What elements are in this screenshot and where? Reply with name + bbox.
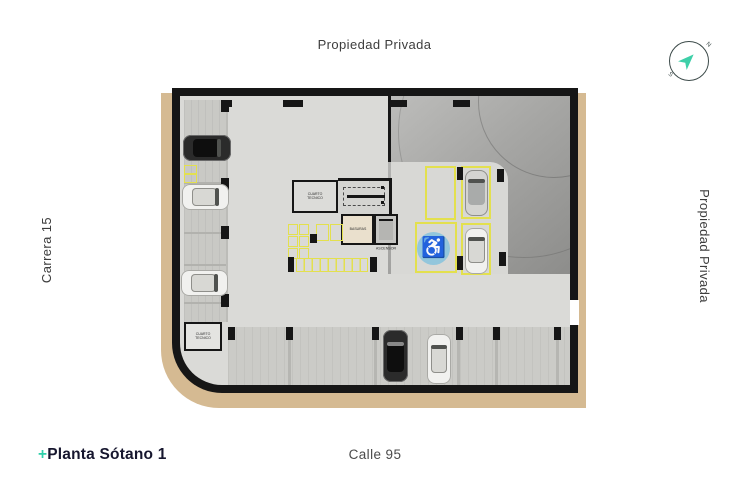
compass-arrow-icon bbox=[677, 49, 700, 72]
elevator-label: ASCENSOR bbox=[368, 247, 404, 251]
column bbox=[286, 327, 293, 340]
elevator-door bbox=[379, 219, 393, 240]
storage-box bbox=[288, 224, 298, 235]
space-divider bbox=[184, 264, 227, 266]
parking-space-empty bbox=[425, 166, 456, 220]
car-white-left-1 bbox=[182, 184, 229, 210]
room-technical-2-label: CUARTO TECNICO bbox=[190, 332, 217, 340]
stair-rail bbox=[347, 195, 385, 198]
column bbox=[497, 169, 504, 182]
car-white-right bbox=[465, 228, 488, 274]
compass-icon: N S bbox=[669, 41, 709, 81]
column bbox=[457, 256, 463, 270]
column bbox=[221, 100, 229, 112]
room-technical-2: CUARTO TECNICO bbox=[184, 322, 222, 351]
storage-box-divider bbox=[184, 173, 197, 175]
label-propiedad-privada-right: Propiedad Privada bbox=[698, 186, 712, 306]
column bbox=[390, 100, 407, 107]
car-white-bottom bbox=[427, 334, 451, 384]
floorplan-page: Propiedad Privada Carrera 15 Propiedad P… bbox=[0, 0, 749, 500]
column bbox=[228, 327, 235, 340]
plan-title: +Planta Sótano 1 bbox=[38, 446, 167, 464]
column bbox=[288, 257, 294, 272]
car-dark-top-left bbox=[183, 135, 231, 161]
column bbox=[499, 252, 506, 266]
column bbox=[456, 327, 463, 340]
storage-box bbox=[299, 236, 309, 247]
floor-area: CUARTO TECNICO CUARTO TECNICO BASURAS AS… bbox=[180, 96, 570, 385]
label-calle-95: Calle 95 bbox=[255, 447, 495, 462]
wheelchair-icon: ♿ bbox=[417, 232, 450, 265]
car-silver-right bbox=[465, 170, 488, 216]
column bbox=[457, 167, 463, 180]
column bbox=[221, 226, 229, 239]
column bbox=[493, 327, 500, 340]
stairs bbox=[338, 178, 392, 214]
room-trash: BASURAS bbox=[341, 214, 374, 245]
label-propiedad-privada-top: Propiedad Privada bbox=[0, 37, 749, 52]
column bbox=[554, 327, 561, 340]
room-trash-label: BASURAS bbox=[344, 227, 371, 231]
bike-rack-row bbox=[296, 258, 368, 272]
column bbox=[372, 327, 379, 340]
storage-box bbox=[299, 224, 309, 235]
room-technical-1: CUARTO TECNICO bbox=[292, 180, 338, 213]
wall-opening bbox=[570, 300, 579, 325]
label-carrera-15: Carrera 15 bbox=[39, 190, 53, 310]
column bbox=[283, 100, 303, 107]
column bbox=[370, 257, 377, 272]
column bbox=[310, 234, 317, 243]
plus-icon: + bbox=[38, 446, 47, 463]
compass-south-label: S bbox=[666, 71, 674, 79]
plan-title-text: Planta Sótano 1 bbox=[47, 446, 166, 463]
car-dark-bottom bbox=[383, 330, 408, 382]
storage-box bbox=[330, 224, 343, 241]
room-technical-1-label: CUARTO TECNICO bbox=[302, 192, 329, 200]
storage-box bbox=[316, 224, 329, 241]
column bbox=[453, 100, 470, 107]
car-white-left-2 bbox=[181, 270, 228, 296]
elevator bbox=[374, 214, 398, 245]
storage-box bbox=[288, 236, 298, 247]
